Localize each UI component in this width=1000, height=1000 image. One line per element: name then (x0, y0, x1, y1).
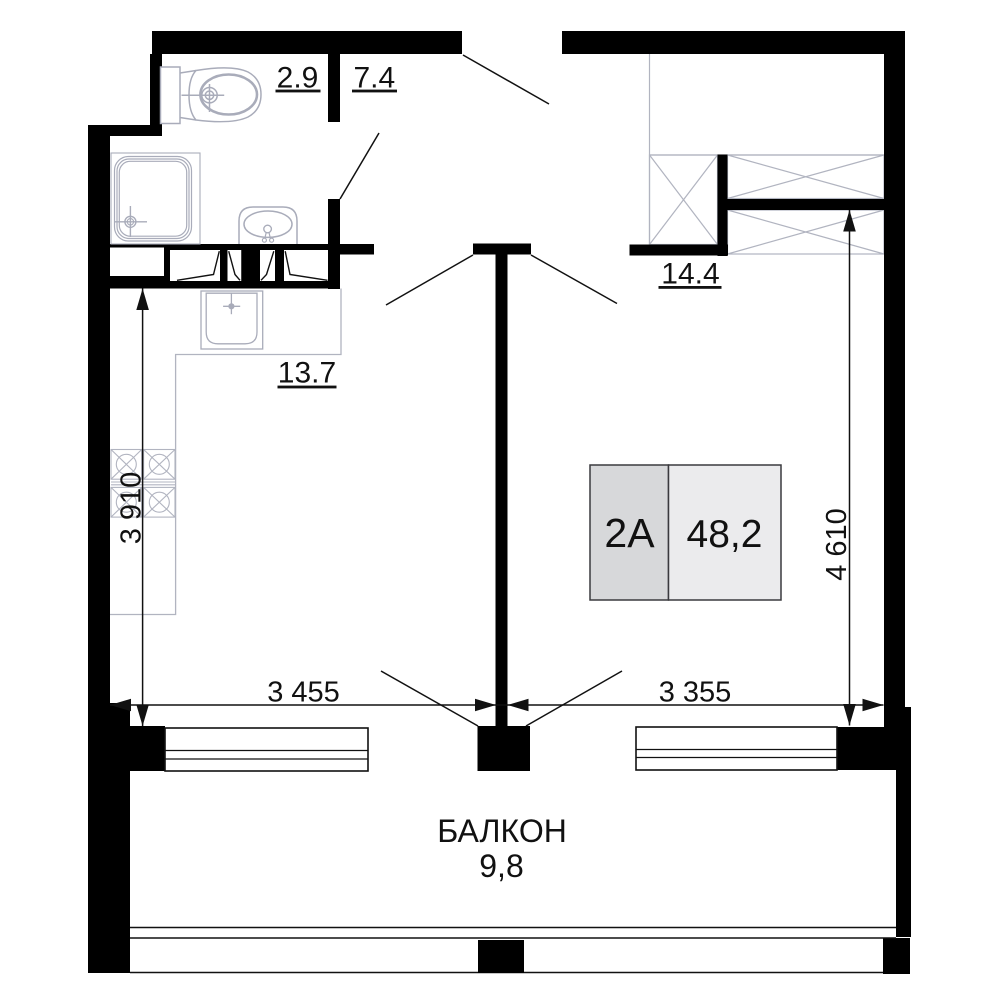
svg-text:3 355: 3 355 (659, 677, 732, 709)
svg-text:4 610: 4 610 (821, 508, 853, 581)
svg-text:9,8: 9,8 (479, 848, 523, 884)
svg-text:13.7: 13.7 (278, 357, 336, 390)
svg-text:3 455: 3 455 (267, 677, 340, 709)
svg-text:2A: 2A (604, 510, 655, 556)
svg-text:48,2: 48,2 (687, 513, 763, 556)
svg-text:2.9: 2.9 (277, 62, 319, 95)
svg-text:3 910: 3 910 (116, 472, 148, 545)
svg-text:7.4: 7.4 (353, 62, 395, 95)
svg-text:14.4: 14.4 (661, 258, 719, 291)
svg-text:БАЛКОН: БАЛКОН (437, 813, 567, 849)
